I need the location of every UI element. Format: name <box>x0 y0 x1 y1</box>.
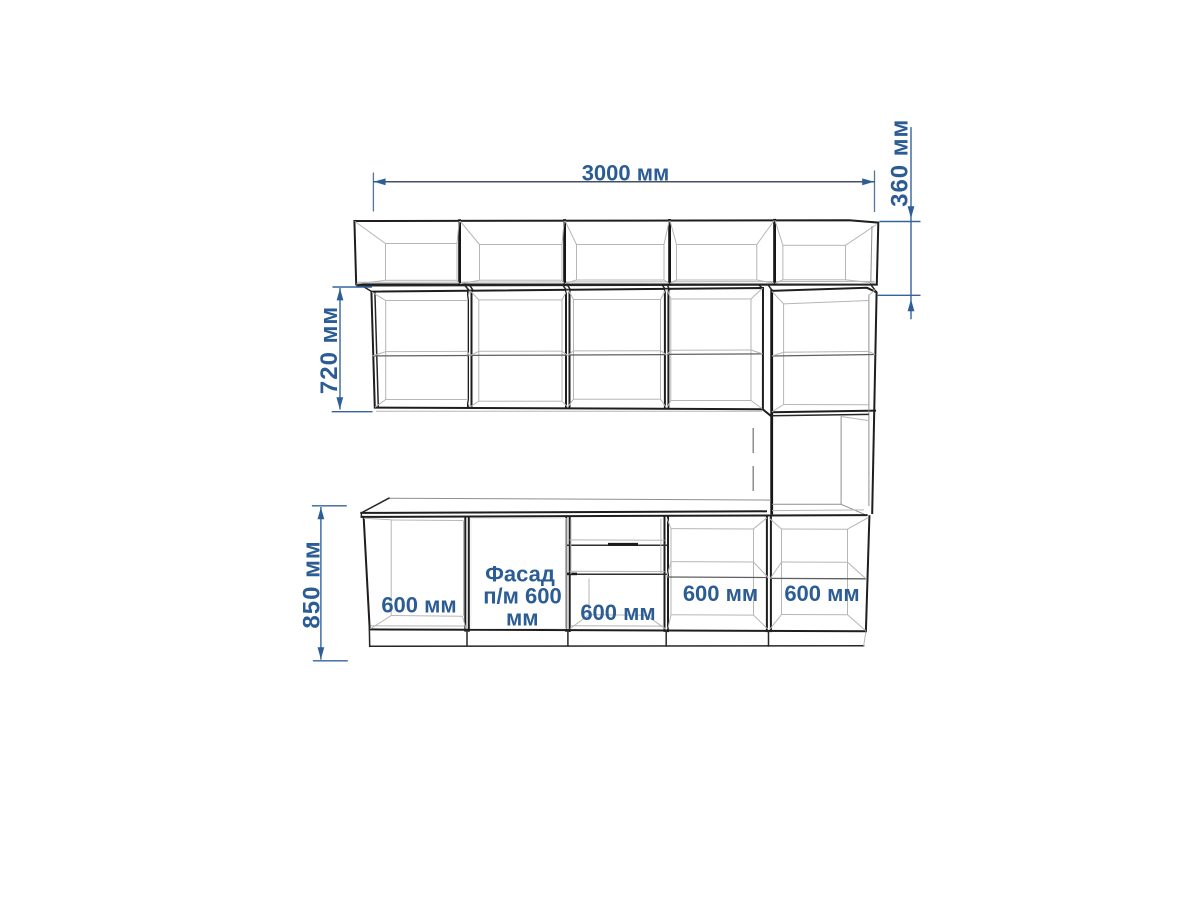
svg-text:360 мм: 360 мм <box>887 119 914 207</box>
svg-text:мм: мм <box>506 606 539 631</box>
svg-text:600 мм: 600 мм <box>784 581 859 606</box>
svg-text:600 мм: 600 мм <box>683 581 758 606</box>
svg-text:720 мм: 720 мм <box>316 306 343 394</box>
svg-text:600 мм: 600 мм <box>580 600 655 625</box>
svg-text:850 мм: 850 мм <box>299 540 326 628</box>
svg-text:3000 мм: 3000 мм <box>582 161 670 186</box>
svg-text:600 мм: 600 мм <box>381 593 456 618</box>
